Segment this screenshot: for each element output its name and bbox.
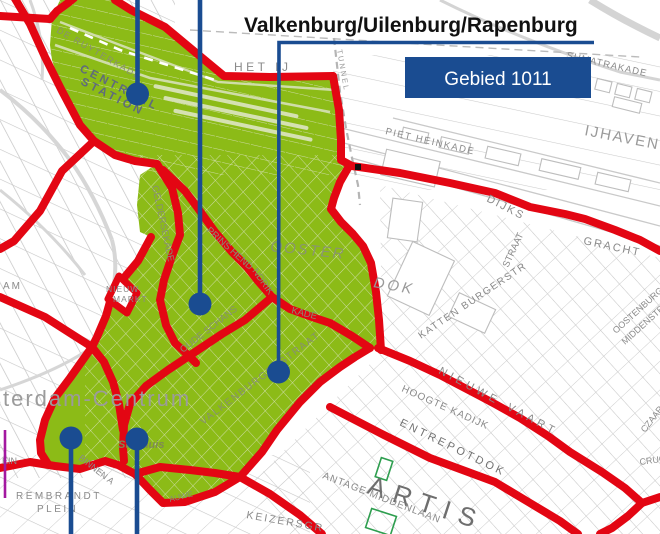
svg-text:Valkenburg/Uilenburg/Rapenburg: Valkenburg/Uilenburg/Rapenburg [244,14,578,37]
svg-text:AM: AM [3,281,22,292]
svg-text:REMBRANDT: REMBRANDT [16,491,102,502]
svg-text:NIEUW: NIEUW [106,284,139,294]
svg-text:sterdam-Centrum: sterdam-Centrum [0,386,191,411]
svg-text:HET IJ: HET IJ [234,60,291,74]
svg-text:MARKT: MARKT [113,294,148,304]
svg-text:Gebied 1011: Gebied 1011 [444,69,551,90]
